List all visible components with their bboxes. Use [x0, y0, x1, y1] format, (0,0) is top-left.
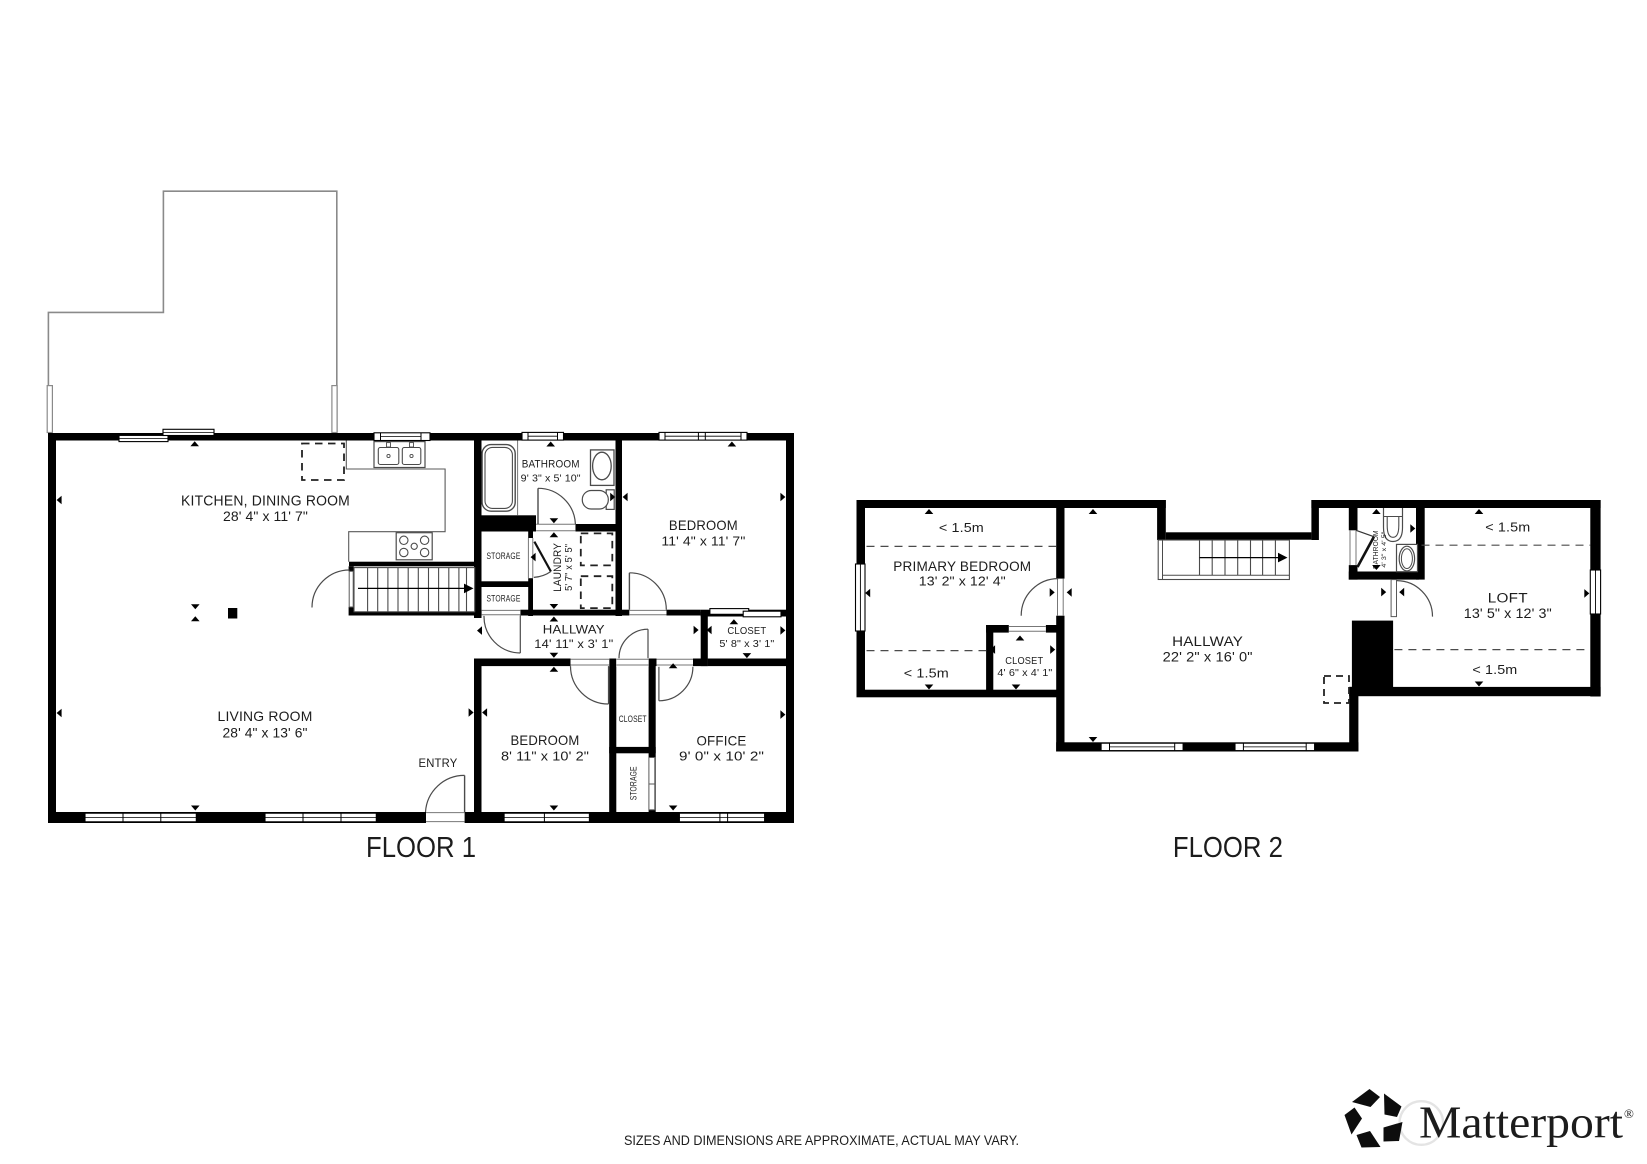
- svg-text:< 1.5m: < 1.5m: [1472, 662, 1517, 677]
- svg-text:®: ®: [1624, 1106, 1634, 1121]
- svg-text:STORAGE: STORAGE: [487, 594, 521, 604]
- svg-text:BEDROOM: BEDROOM: [511, 732, 580, 748]
- svg-text:CLOSET: CLOSET: [619, 714, 647, 724]
- svg-text:SIZES AND DIMENSIONS ARE APPRO: SIZES AND DIMENSIONS ARE APPROXIMATE, AC…: [624, 1133, 1019, 1148]
- svg-text:BATHROOM: BATHROOM: [522, 459, 580, 471]
- svg-text:LAUNDRY: LAUNDRY: [552, 543, 564, 592]
- svg-text:< 1.5m: < 1.5m: [904, 666, 949, 681]
- svg-text:22' 2" x 16' 0": 22' 2" x 16' 0": [1163, 650, 1253, 665]
- svg-text:LOFT: LOFT: [1488, 590, 1528, 606]
- svg-text:5' 8" x 3' 1": 5' 8" x 3' 1": [719, 639, 774, 650]
- svg-text:5' 7" x 5' 5": 5' 7" x 5' 5": [564, 544, 575, 591]
- svg-text:STORAGE: STORAGE: [487, 551, 521, 561]
- svg-text:11' 4" x 11' 7": 11' 4" x 11' 7": [661, 534, 745, 549]
- svg-text:CLOSET: CLOSET: [727, 626, 766, 637]
- svg-text:STORAGE: STORAGE: [629, 766, 639, 800]
- svg-text:< 1.5m: < 1.5m: [1485, 520, 1530, 535]
- svg-text:13' 5" x 12' 3": 13' 5" x 12' 3": [1464, 606, 1552, 621]
- svg-text:BEDROOM: BEDROOM: [669, 517, 738, 533]
- svg-text:14' 11" x 3' 1": 14' 11" x 3' 1": [534, 637, 613, 651]
- svg-text:ENTRY: ENTRY: [419, 758, 458, 770]
- svg-text:HALLWAY: HALLWAY: [1172, 633, 1243, 649]
- svg-text:Matterport: Matterport: [1419, 1097, 1623, 1148]
- svg-text:28' 4" x 13' 6": 28' 4" x 13' 6": [223, 726, 308, 741]
- svg-text:FLOOR 2: FLOOR 2: [1173, 832, 1283, 864]
- svg-text:OFFICE: OFFICE: [697, 733, 747, 749]
- svg-text:9' 0" x 10' 2": 9' 0" x 10' 2": [679, 749, 764, 764]
- svg-text:CLOSET: CLOSET: [1005, 656, 1043, 667]
- svg-text:13' 2" x 12' 4": 13' 2" x 12' 4": [919, 574, 1006, 589]
- svg-text:4' 3" x 4' 5": 4' 3" x 4' 5": [1381, 531, 1388, 568]
- svg-text:8' 11" x 10' 2": 8' 11" x 10' 2": [501, 749, 589, 764]
- svg-text:KITCHEN, DINING ROOM: KITCHEN, DINING ROOM: [181, 494, 350, 510]
- svg-text:< 1.5m: < 1.5m: [939, 520, 984, 535]
- svg-text:9' 3" x 5' 10": 9' 3" x 5' 10": [521, 474, 581, 485]
- svg-text:28' 4" x 11' 7": 28' 4" x 11' 7": [223, 509, 308, 524]
- svg-text:BATHROOM: BATHROOM: [1372, 530, 1380, 569]
- svg-text:FLOOR 1: FLOOR 1: [366, 832, 476, 864]
- svg-text:LIVING ROOM: LIVING ROOM: [218, 708, 313, 724]
- svg-text:PRIMARY BEDROOM: PRIMARY BEDROOM: [893, 559, 1031, 574]
- svg-text:HALLWAY: HALLWAY: [543, 623, 605, 637]
- svg-text:4' 6" x 4' 1": 4' 6" x 4' 1": [997, 668, 1052, 679]
